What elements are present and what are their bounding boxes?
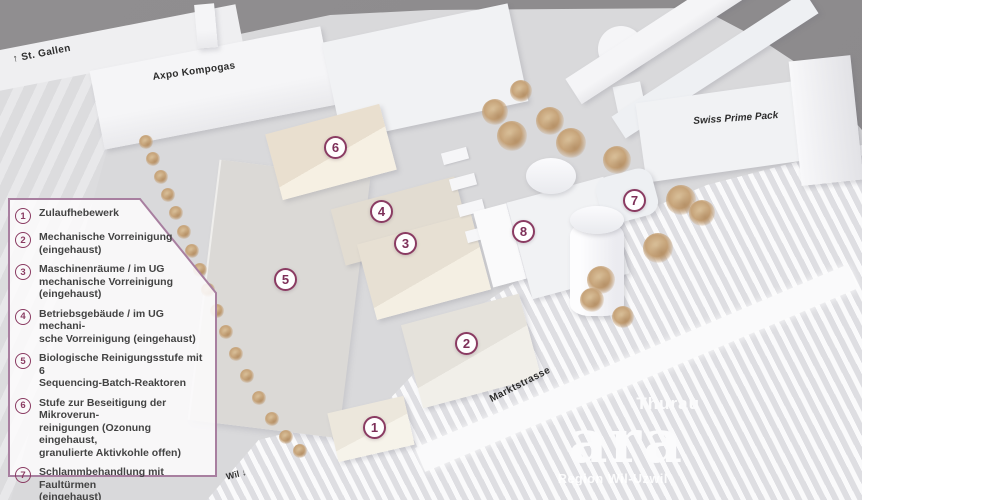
tree bbox=[643, 233, 673, 263]
legend-num-7: 7 bbox=[15, 467, 31, 483]
tree bbox=[293, 444, 307, 458]
tree bbox=[482, 99, 508, 125]
tree bbox=[139, 135, 153, 149]
marker-7: 7 bbox=[623, 189, 646, 212]
legend-line: Maschinenräume / im UG bbox=[39, 263, 173, 276]
legend-num-2: 2 bbox=[15, 232, 31, 248]
legend-item-1: 1 Zulaufhebewerk bbox=[15, 207, 207, 224]
digester-tower-small bbox=[526, 158, 576, 194]
screenshot-canvas: ↑ St. Gallen Axpo Kompogas Swiss Prime P… bbox=[0, 0, 1000, 500]
marker-3: 3 bbox=[394, 232, 417, 255]
tree bbox=[265, 412, 279, 426]
building-chimney bbox=[194, 3, 218, 49]
legend-line: sche Vorreinigung (eingehaust) bbox=[39, 333, 207, 346]
legend-num-1: 1 bbox=[15, 208, 31, 224]
tree bbox=[689, 200, 715, 226]
legend-line: Mechanische Vorreinigung bbox=[39, 231, 172, 244]
legend-line: mechanische Vorreinigung bbox=[39, 276, 173, 289]
legend-line: (eingehaust) bbox=[39, 288, 173, 301]
legend-num-3: 3 bbox=[15, 264, 31, 280]
tree bbox=[240, 369, 254, 383]
tree bbox=[146, 152, 160, 166]
legend-line: Schlammbehandlung mit Faultürmen bbox=[39, 466, 207, 491]
tree bbox=[556, 128, 586, 158]
stair-block bbox=[441, 147, 469, 165]
legend-num-4: 4 bbox=[15, 309, 31, 325]
tree bbox=[279, 430, 293, 444]
legend-item-7: 7 Schlammbehandlung mit Faultürmen (eing… bbox=[15, 466, 207, 500]
tree bbox=[229, 347, 243, 361]
tree bbox=[536, 107, 564, 135]
tree bbox=[603, 146, 631, 174]
marker-6: 6 bbox=[324, 136, 347, 159]
legend-item-4: 4 Betriebsgebäude / im UG mechani- sche … bbox=[15, 308, 207, 346]
legend-line: (eingehaust) bbox=[39, 491, 207, 500]
tree bbox=[510, 80, 532, 102]
marker-5: 5 bbox=[274, 268, 297, 291]
tree bbox=[497, 121, 527, 151]
logo-brand: ara bbox=[532, 414, 684, 470]
legend-line: granulierte Aktivkohle offen) bbox=[39, 447, 207, 460]
tree bbox=[219, 325, 233, 339]
legend-line: reinigungen (Ozonung eingehaust, bbox=[39, 422, 207, 447]
legend-box: 1 Zulaufhebewerk 2 Mechanische Vorreinig… bbox=[8, 198, 217, 477]
marker-4: 4 bbox=[370, 200, 393, 223]
digester-tower-top bbox=[570, 206, 624, 234]
legend-line: Biologische Reinigungsstufe mit 6 bbox=[39, 352, 207, 377]
logo-subtitle: Region Wil-Uzwil bbox=[532, 472, 668, 486]
legend-item-3: 3 Maschinenräume / im UG mechanische Vor… bbox=[15, 263, 207, 301]
legend-item-6: 6 Stufe zur Beseitigung der Mikroverun- … bbox=[15, 397, 207, 460]
legend-line: Stufe zur Beseitigung der Mikroverun- bbox=[39, 397, 207, 422]
legend-item-2: 2 Mechanische Vorreinigung (eingehaust) bbox=[15, 231, 207, 256]
legend-line: Sequencing-Batch-Reaktoren bbox=[39, 377, 207, 390]
ara-thurau-logo: Thurau ara Region Wil-Uzwil bbox=[532, 394, 702, 486]
marker-8: 8 bbox=[512, 220, 535, 243]
tree bbox=[580, 288, 604, 312]
marker-2: 2 bbox=[455, 332, 478, 355]
legend-num-5: 5 bbox=[15, 353, 31, 369]
legend-line: Betriebsgebäude / im UG mechani- bbox=[39, 308, 207, 333]
tree bbox=[252, 391, 266, 405]
marker-1: 1 bbox=[363, 416, 386, 439]
legend-num-6: 6 bbox=[15, 398, 31, 414]
legend-item-5: 5 Biologische Reinigungsstufe mit 6 Sequ… bbox=[15, 352, 207, 390]
tree bbox=[154, 170, 168, 184]
legend-line: (eingehaust) bbox=[39, 244, 172, 257]
tree bbox=[612, 306, 634, 328]
model-photo: ↑ St. Gallen Axpo Kompogas Swiss Prime P… bbox=[0, 0, 862, 500]
building-tall-block bbox=[789, 55, 862, 186]
legend-line: Zulaufhebewerk bbox=[39, 207, 119, 220]
